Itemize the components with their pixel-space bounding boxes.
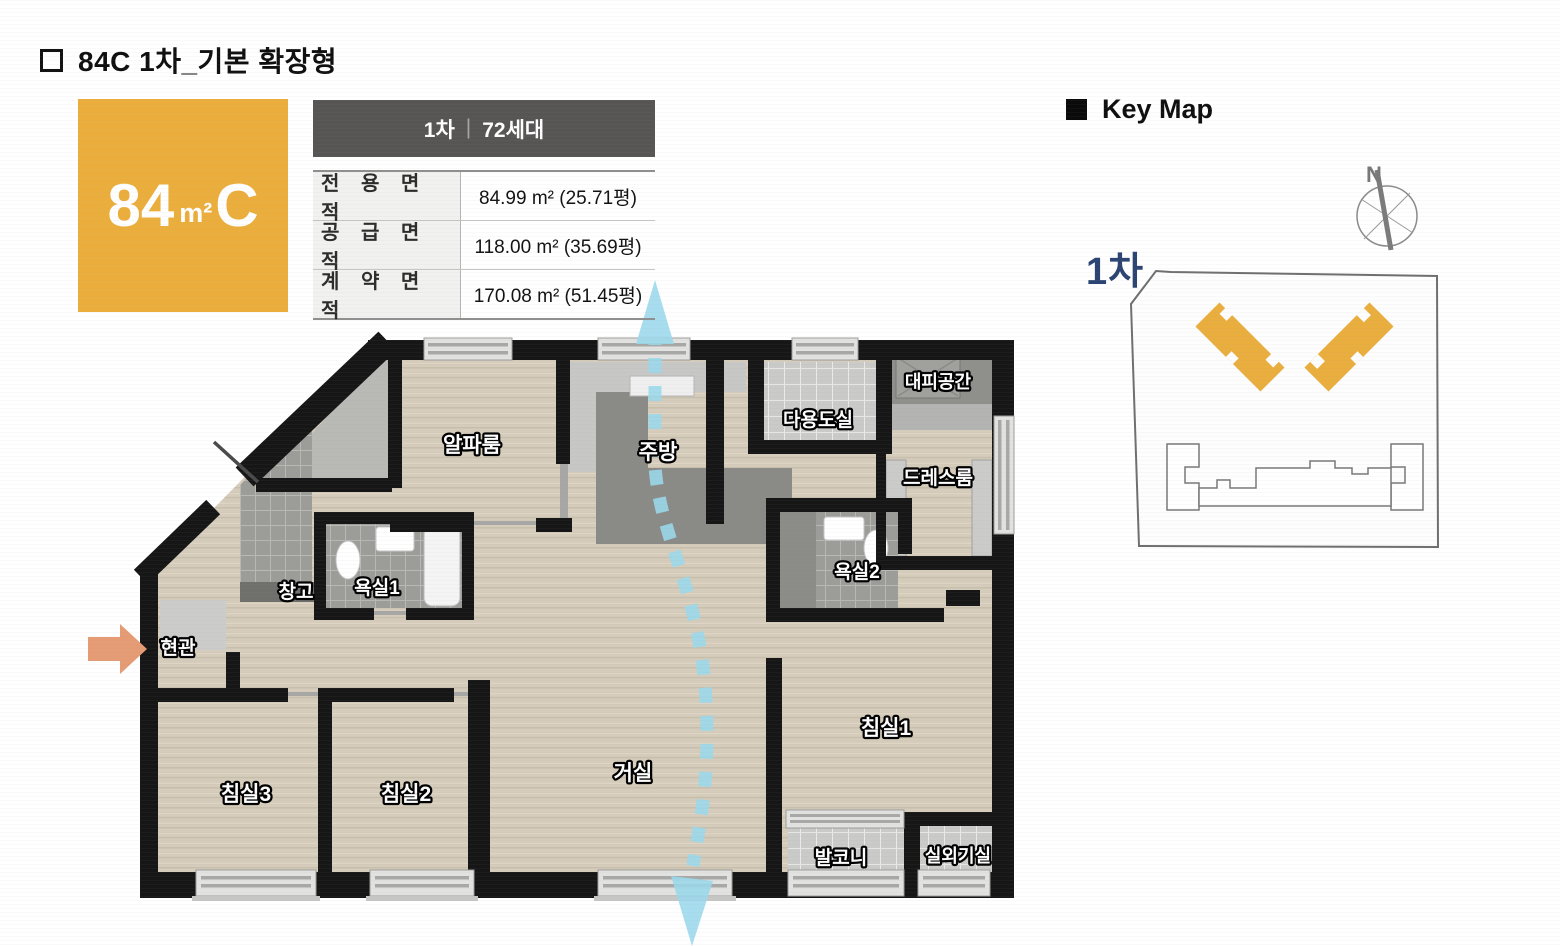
spec-row-label: 전 용 면 적 [313, 172, 461, 220]
unit-area: 84 [107, 176, 174, 236]
key-map-phase-label: 1차 [1086, 240, 1144, 295]
dressroom-cabinet-right [972, 460, 992, 556]
page-title: 84C 1차_기본 확장형 [78, 40, 337, 80]
window-bedroom2 [366, 870, 478, 901]
spec-table-header: 1차 | 72세대 [313, 100, 655, 157]
sink2 [824, 517, 864, 540]
unit-type-badge: 84 m² C [78, 99, 288, 312]
window-bedroom1-balcony [786, 810, 904, 828]
room-label-living: 거실 [614, 762, 653, 785]
compass-n-label: N [1366, 162, 1382, 187]
window-outdoor-unit [918, 870, 990, 896]
key-map-heading: Key Map [1066, 94, 1213, 125]
room-label-balcony: 발코니 [815, 847, 867, 869]
spec-table-body: 전 용 면 적 84.99 m² (25.71평) 공 급 면 적 118.00… [313, 170, 655, 320]
toilet1 [336, 541, 360, 579]
window-bedroom3 [192, 870, 320, 901]
window-living-room [594, 870, 736, 901]
spec-row-label: 공 급 면 적 [313, 221, 461, 269]
entry-arrow-icon [88, 624, 147, 674]
kitchen-counter-bottom [596, 468, 792, 544]
utility-room-floor [764, 362, 878, 450]
table-row: 전 용 면 적 84.99 m² (25.71평) [313, 172, 655, 221]
room-label-refuge: 대피공간 [905, 372, 972, 392]
room-label-kitchen: 주방 [639, 441, 678, 464]
bullet-filled-square-icon [1066, 99, 1087, 120]
floor-plan: 알파룸 주방 다용도실 대피공간 드레스룸 욕실2 욕실1 창고 현관 침실3 … [88, 280, 1014, 946]
spec-row-label: 계 약 면 적 [313, 270, 461, 318]
area-spec-table: 1차 | 72세대 전 용 면 적 84.99 m² (25.71평) 공 급 … [313, 100, 655, 320]
kitchen-band-left [566, 362, 596, 472]
table-row: 계 약 면 적 170.08 m² (51.45평) [313, 270, 655, 318]
window-utility [792, 338, 858, 360]
key-map: N [1131, 162, 1438, 547]
slide: 84C 1차_기본 확장형 84 m² C 1차 | 72세대 전 용 면 적 … [0, 0, 1560, 946]
room-label-storage: 창고 [279, 581, 314, 603]
room-label-entrance: 현관 [161, 637, 196, 659]
room-label-bedroom1: 침실1 [861, 717, 912, 740]
window-alpha-room [424, 338, 512, 360]
kitchen-sink-unit [630, 376, 694, 396]
bathtub [424, 526, 460, 606]
unit-area-unit: m² [179, 198, 212, 229]
airflow-arrow-down-icon [671, 876, 713, 946]
room-label-alpha: 알파룸 [443, 434, 501, 457]
room-label-dressroom: 드레스룸 [903, 467, 973, 489]
room-label-bathroom1: 욕실1 [354, 577, 400, 599]
unit-type-text: 84 m² C [107, 176, 258, 236]
key-map-title: Key Map [1102, 94, 1213, 125]
bullet-square-icon [40, 49, 63, 72]
shower-area [780, 512, 816, 608]
window-dressroom [994, 416, 1014, 534]
spec-row-value: 118.00 m² (35.69평) [461, 221, 655, 269]
window-balcony [788, 870, 904, 896]
table-row: 공 급 면 적 118.00 m² (35.69평) [313, 221, 655, 270]
room-label-outdoor-unit: 실외기실 [925, 846, 991, 866]
spec-row-value: 170.08 m² (51.45평) [461, 270, 655, 318]
refuge-shaft [890, 404, 996, 430]
spec-separator: | [466, 116, 471, 140]
room-label-bathroom2: 욕실2 [834, 561, 880, 583]
room-label-bedroom3: 침실3 [221, 783, 271, 806]
page-title-row: 84C 1차_기본 확장형 [40, 40, 337, 80]
room-label-utility: 다용도실 [783, 409, 853, 431]
north-compass-icon: N [1357, 162, 1417, 250]
room-label-bedroom2: 침실2 [381, 783, 431, 806]
spec-phase: 1차 [424, 114, 455, 144]
unit-type-letter: C [215, 176, 258, 236]
spec-row-value: 84.99 m² (25.71평) [461, 172, 655, 220]
spec-households: 72세대 [482, 114, 544, 144]
